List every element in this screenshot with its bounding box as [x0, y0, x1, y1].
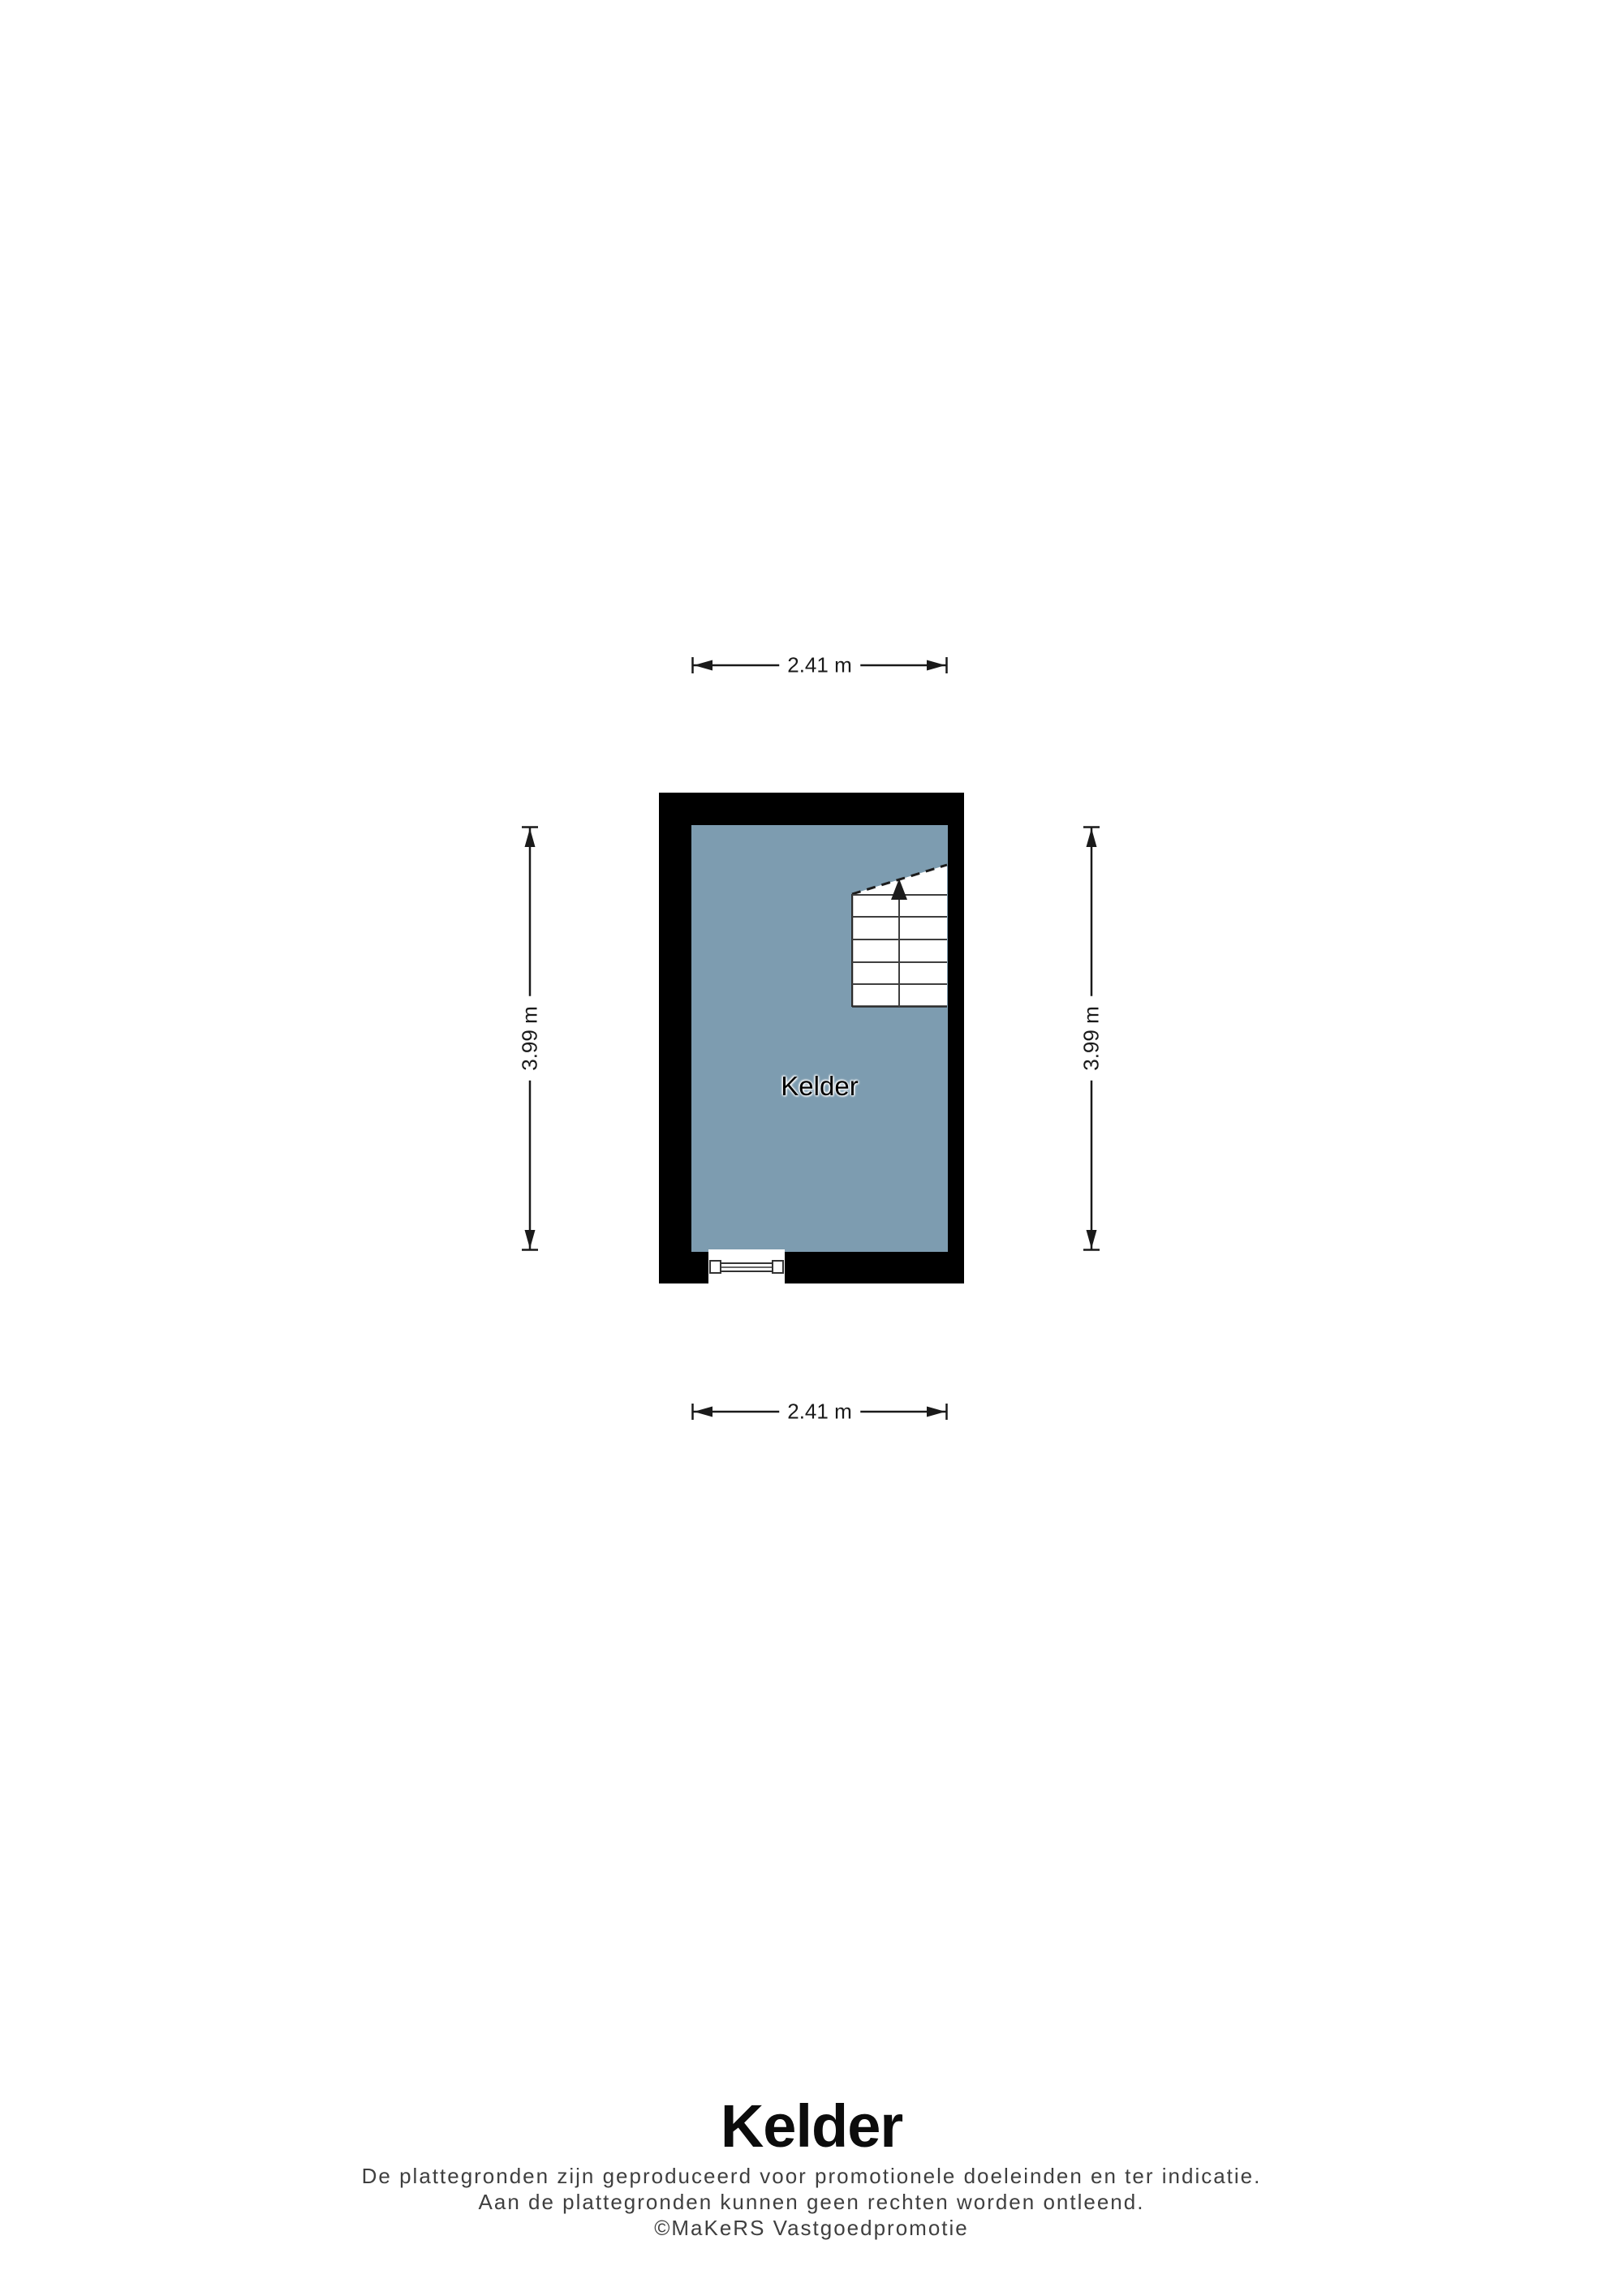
- room-label: Kelder: [691, 1071, 948, 1102]
- dimension-label-right: 3.99 m: [1079, 996, 1104, 1081]
- disclaimer: De plattegronden zijn geproduceerd voor …: [0, 2163, 1623, 2241]
- dimension-label-top: 2.41 m: [779, 653, 860, 678]
- page-title: Kelder: [0, 2096, 1623, 2156]
- floorplan-page: Kelder 2.41 m 2.41 m 3.: [0, 0, 1623, 2296]
- disclaimer-line-2: Aan de plattegronden kunnen geen rechten…: [0, 2189, 1623, 2215]
- dimension-top: 2.41 m: [691, 654, 948, 677]
- dimension-label-bottom: 2.41 m: [779, 1400, 860, 1425]
- dimension-left: 3.99 m: [519, 826, 541, 1251]
- dimension-bottom: 2.41 m: [691, 1400, 948, 1423]
- disclaimer-line-1: De plattegronden zijn geproduceerd voor …: [0, 2163, 1623, 2189]
- window: [708, 1249, 785, 1284]
- disclaimer-line-3: ©MaKeRS Vastgoedpromotie: [0, 2215, 1623, 2241]
- dimension-right: 3.99 m: [1080, 826, 1103, 1251]
- stairs: [851, 863, 948, 1008]
- dimension-label-left: 3.99 m: [518, 996, 543, 1081]
